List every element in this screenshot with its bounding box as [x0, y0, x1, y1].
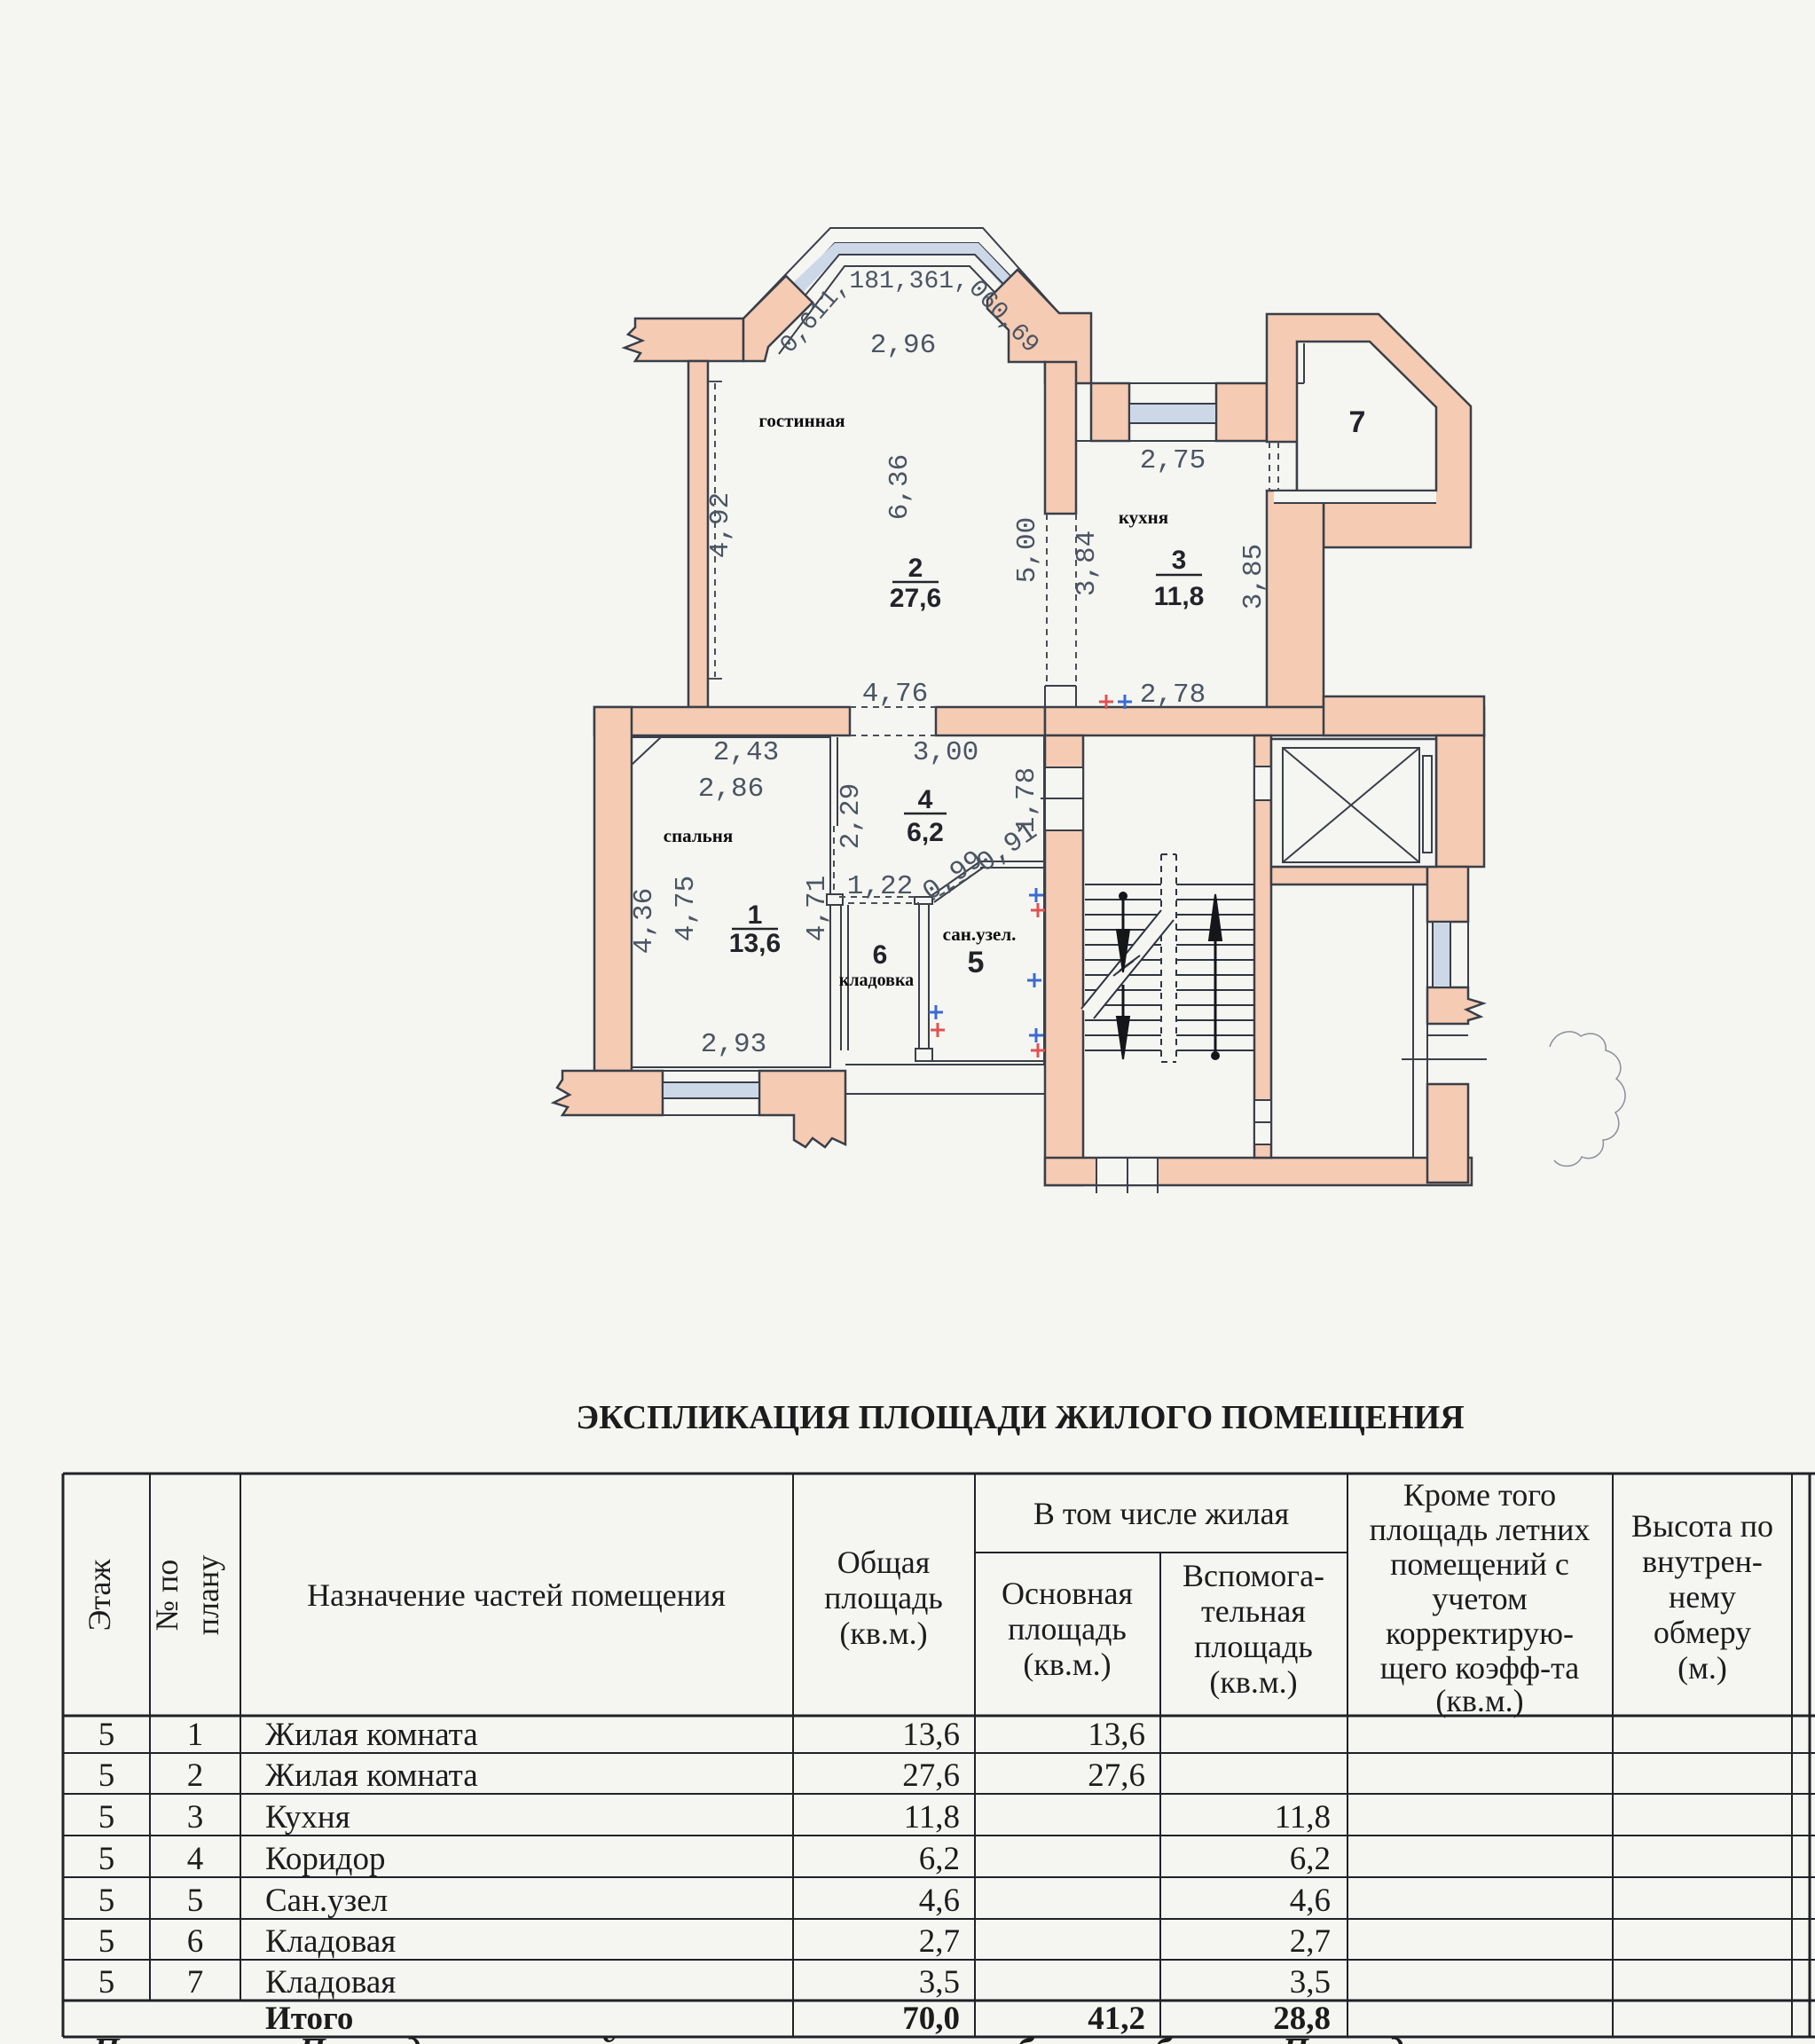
- svg-text:3,84: 3,84: [1072, 531, 1103, 596]
- svg-text:Общая: Общая: [837, 1545, 931, 1580]
- svg-text:3,85: 3,85: [1238, 544, 1269, 609]
- svg-text:Коридор: Коридор: [265, 1841, 385, 1877]
- svg-text:(кв.м.): (кв.м.): [1209, 1664, 1297, 1700]
- svg-text:2: 2: [908, 554, 923, 583]
- svg-text:13,6: 13,6: [902, 1717, 960, 1753]
- svg-text:5: 5: [98, 1757, 115, 1794]
- svg-text:3: 3: [187, 1799, 204, 1836]
- svg-text:6,36: 6,36: [884, 454, 915, 520]
- svg-text:6,2: 6,2: [1290, 1841, 1331, 1877]
- svg-text:2,75: 2,75: [1140, 445, 1206, 476]
- svg-text:щего коэфф-та: щего коэфф-та: [1380, 1650, 1580, 1686]
- svg-text:7: 7: [1349, 405, 1366, 439]
- svg-text:6: 6: [187, 1923, 204, 1960]
- svg-text:5: 5: [98, 1883, 115, 1919]
- svg-text:3,00: 3,00: [913, 737, 978, 768]
- svg-text:Назначение частей помещения: Назначение частей помещения: [307, 1577, 726, 1613]
- svg-text:5: 5: [968, 946, 985, 979]
- svg-text:3: 3: [1172, 546, 1187, 575]
- svg-text:5: 5: [187, 1883, 204, 1919]
- svg-text:2,96: 2,96: [870, 330, 936, 361]
- svg-text:внутрен-: внутрен-: [1642, 1544, 1763, 1579]
- svg-text:4: 4: [918, 785, 933, 814]
- svg-text:4,6: 4,6: [1290, 1883, 1331, 1919]
- svg-text:Кроме того: Кроме того: [1403, 1477, 1556, 1513]
- svg-text:№ по: № по: [149, 1560, 185, 1631]
- svg-text:13,6: 13,6: [1088, 1717, 1145, 1753]
- svg-text:2,29: 2,29: [836, 783, 867, 849]
- svg-text:2,78: 2,78: [1140, 680, 1206, 711]
- svg-text:Кухня: Кухня: [265, 1799, 350, 1836]
- svg-text:7: 7: [187, 1964, 204, 2001]
- svg-text:5: 5: [98, 1841, 115, 1877]
- svg-text:5: 5: [98, 1799, 115, 1836]
- svg-text:2,7: 2,7: [919, 1923, 960, 1960]
- svg-text:3,5: 3,5: [919, 1964, 960, 2001]
- svg-text:6,2: 6,2: [907, 818, 944, 847]
- svg-text:(м.): (м.): [1677, 1650, 1727, 1686]
- svg-text:тельная: тельная: [1201, 1593, 1306, 1629]
- svg-text:Вспомога-: Вспомога-: [1182, 1558, 1324, 1593]
- svg-text:5: 5: [98, 1964, 115, 2001]
- svg-text:5: 5: [98, 1923, 115, 1960]
- svg-text:площадь: площадь: [1008, 1611, 1127, 1647]
- svg-text:нему: нему: [1669, 1579, 1736, 1615]
- svg-text:(кв.м.): (кв.м.): [839, 1616, 927, 1651]
- svg-text:4,92: 4,92: [705, 492, 736, 558]
- svg-text:(кв.м.): (кв.м.): [1435, 1683, 1523, 1718]
- svg-text:кладовка: кладовка: [839, 971, 914, 990]
- svg-text:2,86: 2,86: [698, 774, 764, 805]
- svg-text:4,71: 4,71: [802, 876, 833, 941]
- svg-text:4: 4: [187, 1841, 204, 1877]
- svg-text:Кладовая: Кладовая: [265, 1964, 396, 2001]
- svg-text:5,00: 5,00: [1012, 517, 1043, 583]
- svg-text:27,6: 27,6: [1088, 1757, 1145, 1794]
- svg-text:Кладовая: Кладовая: [265, 1923, 396, 1960]
- svg-text:2: 2: [187, 1757, 204, 1794]
- svg-text:4,76: 4,76: [862, 679, 928, 710]
- svg-text:4,36: 4,36: [629, 888, 660, 954]
- svg-text:13,6: 13,6: [729, 929, 781, 958]
- svg-text:2,7: 2,7: [1290, 1923, 1331, 1960]
- svg-text:помещений с: помещений с: [1390, 1546, 1569, 1582]
- svg-text:площадь летних: площадь летних: [1370, 1512, 1591, 1547]
- svg-text:корректирую-: корректирую-: [1386, 1616, 1574, 1651]
- svg-text:Сан.узел: Сан.узел: [265, 1883, 388, 1919]
- svg-text:27,6: 27,6: [890, 584, 941, 613]
- svg-text:11,8: 11,8: [1275, 1799, 1331, 1836]
- svg-text:2,43: 2,43: [713, 737, 779, 768]
- svg-text:4,6: 4,6: [919, 1883, 960, 1919]
- svg-text:(кв.м.): (кв.м.): [1023, 1647, 1111, 1682]
- svg-text:1,22: 1,22: [847, 871, 913, 902]
- svg-text:Примечание: Площадь помещени: Примечание: Площадь помещений указана по…: [92, 2032, 1419, 2044]
- svg-text:6: 6: [873, 940, 888, 970]
- svg-text:Основная: Основная: [1002, 1576, 1133, 1611]
- svg-text:4,75: 4,75: [671, 876, 702, 941]
- svg-text:27,6: 27,6: [902, 1757, 960, 1794]
- svg-text:5: 5: [98, 1717, 115, 1753]
- svg-text:1: 1: [748, 900, 763, 930]
- svg-text:площадь: площадь: [824, 1580, 943, 1616]
- svg-text:спальня: спальня: [664, 825, 733, 846]
- svg-text:сан.узел.: сан.узел.: [943, 924, 1017, 945]
- svg-text:11,8: 11,8: [904, 1799, 960, 1836]
- svg-text:Жилая комната: Жилая комната: [265, 1717, 478, 1753]
- svg-text:6,2: 6,2: [919, 1841, 960, 1877]
- svg-text:2,93: 2,93: [701, 1029, 766, 1060]
- svg-text:Жилая комната: Жилая комната: [265, 1757, 478, 1794]
- svg-text:кухня: кухня: [1119, 507, 1168, 528]
- svg-text:плану: плану: [190, 1555, 225, 1635]
- svg-text:11,8: 11,8: [1154, 582, 1205, 611]
- svg-text:Высота по: Высота по: [1631, 1508, 1773, 1544]
- svg-text:учетом: учетом: [1432, 1581, 1527, 1616]
- svg-text:площадь: площадь: [1194, 1629, 1313, 1664]
- svg-text:В том числе жилая: В том числе жилая: [1033, 1496, 1289, 1531]
- svg-text:обмеру: обмеру: [1654, 1615, 1751, 1650]
- svg-text:гостинная: гостинная: [758, 410, 845, 431]
- svg-text:3,5: 3,5: [1290, 1964, 1331, 2001]
- svg-text:ЭКСПЛИКАЦИЯ ПЛОЩАДИ ЖИЛОГО ПОМ: ЭКСПЛИКАЦИЯ ПЛОЩАДИ ЖИЛОГО ПОМЕЩЕНИЯ: [576, 1399, 1464, 1436]
- svg-text:1: 1: [187, 1717, 204, 1753]
- svg-text:Этаж: Этаж: [82, 1558, 117, 1631]
